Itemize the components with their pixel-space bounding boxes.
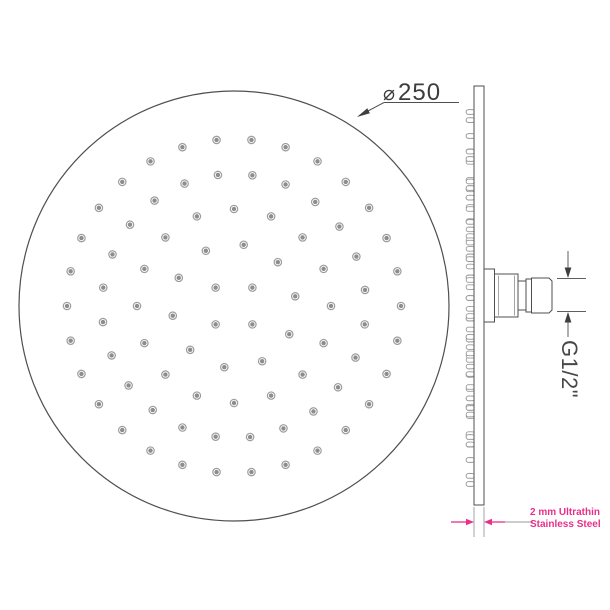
side-plate xyxy=(474,86,484,505)
shower-head-technical-drawing: ⌀250 G1/2" 2 mm Ultrathin Stainless Stee… xyxy=(0,0,610,610)
drawing-canvas xyxy=(0,0,610,610)
thickness-note-line1: 2 mm Ultrathin xyxy=(530,507,601,519)
thickness-note: 2 mm Ultrathin Stainless Steel xyxy=(530,507,601,530)
thread-size-label: G1/2" xyxy=(556,340,582,398)
thread-dimension xyxy=(557,251,586,337)
side-nozzle-bumps xyxy=(466,110,474,487)
thickness-note-line2: Stainless Steel xyxy=(530,519,601,531)
inlet-connector xyxy=(484,269,552,322)
diameter-label: ⌀250 xyxy=(383,79,441,107)
thickness-dimension xyxy=(451,507,533,537)
diameter-symbol: ⌀ xyxy=(383,81,396,105)
diameter-value: 250 xyxy=(398,79,441,106)
face-outline xyxy=(19,91,449,521)
